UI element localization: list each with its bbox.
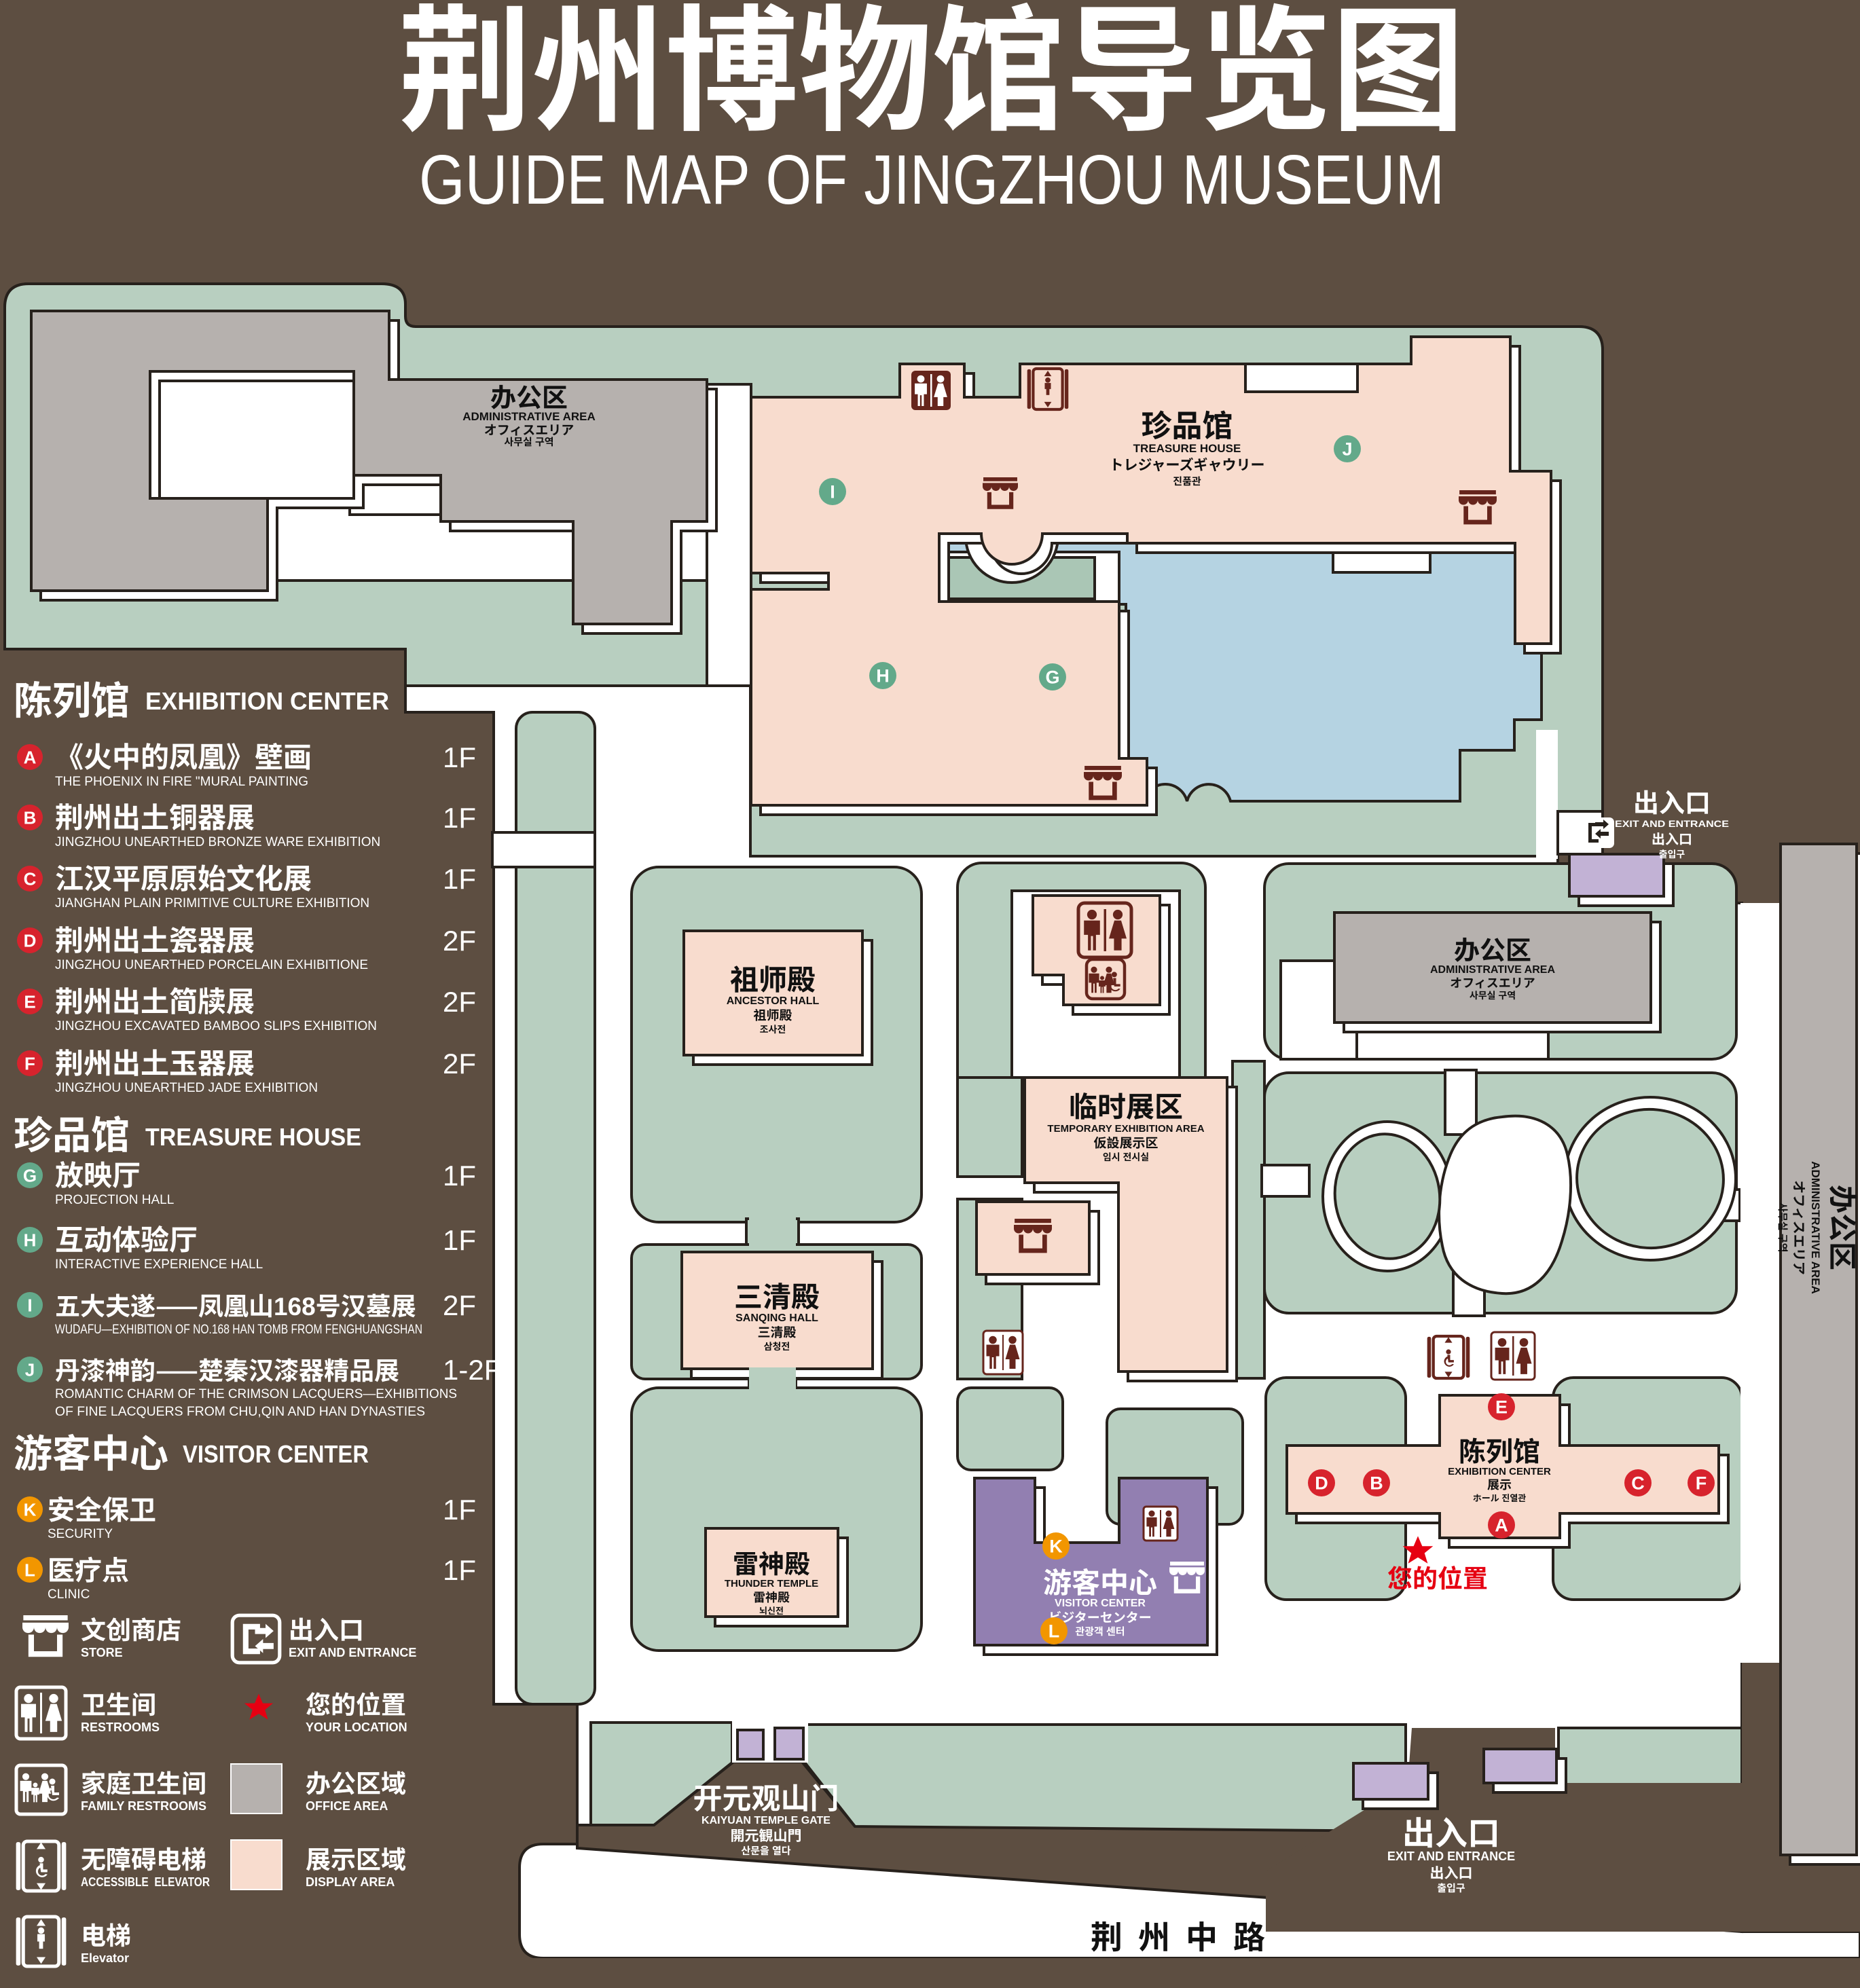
svg-text:ADMINISTRATIVE AREA: ADMINISTRATIVE AREA	[1809, 1161, 1822, 1294]
svg-text:OF FINE LACQUERS FROM CHU,QIN: OF FINE LACQUERS FROM CHU,QIN AND HAN DY…	[55, 1405, 425, 1419]
svg-text:您的位置: 您的位置	[1387, 1558, 1488, 1595]
svg-text:L: L	[24, 1560, 35, 1580]
svg-text:珍品馆: 珍品馆	[1141, 401, 1233, 445]
svg-text:游客中心: 游客中心	[14, 1423, 168, 1479]
svg-text:사무실 구역: 사무실 구역	[504, 435, 553, 449]
svg-text:1F: 1F	[443, 1554, 476, 1586]
svg-text:荆州出土玉器展: 荆州出土玉器展	[55, 1041, 255, 1082]
svg-text:1F: 1F	[443, 1160, 476, 1192]
svg-text:I: I	[27, 1295, 32, 1315]
svg-text:办公区: 办公区	[490, 377, 568, 414]
svg-text:H: H	[876, 666, 890, 686]
svg-text:出入口: 出入口	[289, 1610, 364, 1646]
svg-text:YOUR LOCATION: YOUR LOCATION	[306, 1720, 407, 1734]
svg-text:三清殿: 三清殿	[734, 1274, 820, 1316]
svg-text:H: H	[24, 1230, 37, 1250]
svg-text:EXIT AND ENTRANCE: EXIT AND ENTRANCE	[289, 1646, 416, 1659]
svg-text:출입구: 출입구	[1659, 847, 1685, 861]
svg-text:荆州出土简牍展: 荆州出土简牍展	[55, 979, 255, 1020]
svg-text:1F: 1F	[443, 1494, 476, 1526]
svg-text:ROMANTIC CHARM OF THE CRIMSON: ROMANTIC CHARM OF THE CRIMSON LACQUERS—E…	[55, 1387, 457, 1401]
svg-text:1-2F: 1-2F	[443, 1354, 501, 1386]
svg-text:출입구: 출입구	[1437, 1881, 1465, 1895]
svg-text:仮設展示区: 仮設展示区	[1093, 1133, 1158, 1152]
svg-text:JINGZHOU UNEARTHED BRONZE WARE: JINGZHOU UNEARTHED BRONZE WARE EXHIBITIO…	[55, 835, 380, 849]
svg-text:办公区: 办公区	[1823, 1185, 1860, 1270]
svg-text:家庭卫生间: 家庭卫生间	[81, 1763, 206, 1800]
svg-text:G: G	[23, 1165, 37, 1185]
svg-text:INTERACTIVE EXPERIENCE HALL: INTERACTIVE EXPERIENCE HALL	[55, 1257, 263, 1272]
svg-text:WUDAFU—EXHIBITION OF NO.168 HA: WUDAFU—EXHIBITION OF NO.168 HAN TOMB FRO…	[55, 1323, 422, 1337]
svg-text:F: F	[1696, 1473, 1707, 1494]
svg-text:JIANGHAN PLAIN PRIMITIVE CULTU: JIANGHAN PLAIN PRIMITIVE CULTURE EXHIBIT…	[55, 896, 369, 910]
svg-text:荆州出土铜器展: 荆州出土铜器展	[55, 795, 255, 836]
svg-text:CLINIC: CLINIC	[48, 1587, 90, 1602]
svg-text:陈列馆: 陈列馆	[1459, 1430, 1540, 1469]
svg-text:D: D	[24, 930, 37, 951]
svg-text:2F: 2F	[443, 925, 476, 957]
svg-text:江汉平原原始文化展: 江汉平原原始文化展	[55, 856, 312, 898]
svg-text:トレジャーズギャウリー: トレジャーズギャウリー	[1110, 454, 1265, 475]
svg-text:EXHIBITION CENTER: EXHIBITION CENTER	[145, 687, 389, 715]
svg-text:사무실 구역: 사무실 구역	[1470, 989, 1516, 1002]
svg-text:开元观山门: 开元观山门	[693, 1775, 839, 1818]
svg-text:開元観山門: 開元観山門	[731, 1825, 802, 1845]
svg-text:您的位置: 您的位置	[306, 1685, 406, 1721]
svg-text:DISPLAY AREA: DISPLAY AREA	[306, 1875, 395, 1889]
svg-text:A: A	[1495, 1515, 1508, 1536]
svg-text:조사전: 조사전	[760, 1023, 786, 1036]
svg-text:삼청전: 삼청전	[764, 1340, 790, 1353]
svg-text:K: K	[1049, 1536, 1063, 1557]
svg-text:ホール 진열관: ホール 진열관	[1473, 1491, 1527, 1504]
svg-text:2F: 2F	[443, 1289, 476, 1321]
svg-text:EXIT AND ENTRANCE: EXIT AND ENTRANCE	[1615, 818, 1729, 829]
svg-text:J: J	[1342, 439, 1352, 460]
svg-text:산문을 열다: 산문을 열다	[741, 1843, 790, 1858]
svg-text:1F: 1F	[443, 863, 476, 895]
svg-text:GUIDE MAP OF JINGZHOU MUSEUM: GUIDE MAP OF JINGZHOU MUSEUM	[419, 141, 1444, 219]
svg-text:放映厅: 放映厅	[55, 1153, 141, 1194]
svg-text:出入口: 出入口	[1430, 1862, 1473, 1883]
svg-text:OFFICE AREA: OFFICE AREA	[306, 1799, 388, 1813]
svg-text:사무실 구역: 사무실 구역	[1776, 1202, 1790, 1252]
svg-text:관광객 센터: 관광객 센터	[1075, 1624, 1125, 1638]
svg-text:C: C	[1631, 1473, 1645, 1494]
svg-text:电梯: 电梯	[81, 1915, 131, 1952]
svg-text:Elevator: Elevator	[81, 1951, 129, 1965]
svg-text:出入口: 出入口	[1652, 828, 1692, 848]
svg-text:荆州博物馆导览图: 荆州博物馆导览图	[399, 0, 1465, 158]
svg-text:1F: 1F	[443, 802, 476, 834]
svg-text:出入口: 出入口	[1402, 1807, 1500, 1854]
svg-text:2F: 2F	[443, 1048, 476, 1080]
svg-text:B: B	[1370, 1473, 1383, 1494]
svg-text:F: F	[24, 1053, 35, 1073]
svg-text:1F: 1F	[443, 741, 476, 773]
svg-text:珍品馆: 珍品馆	[14, 1105, 130, 1160]
svg-text:D: D	[1315, 1473, 1328, 1494]
svg-text:五大夫遂——凤凰山168号汉墓展: 五大夫遂——凤凰山168号汉墓展	[55, 1286, 416, 1323]
svg-text:临时展区: 临时展区	[1069, 1084, 1183, 1126]
svg-text:祖师殿: 祖师殿	[730, 957, 816, 999]
svg-text:2F: 2F	[443, 986, 476, 1018]
svg-text:オフィスエリア: オフィスエリア	[1790, 1180, 1810, 1275]
svg-text:医疗点: 医疗点	[48, 1549, 129, 1588]
svg-text:安全保卫: 安全保卫	[48, 1488, 156, 1528]
svg-text:陈列馆: 陈列馆	[14, 670, 130, 726]
svg-text:1F: 1F	[443, 1224, 476, 1256]
svg-text:无障碍电梯: 无障碍电梯	[81, 1839, 206, 1876]
svg-text:卫生间: 卫生间	[81, 1685, 156, 1721]
svg-text:J: J	[25, 1359, 35, 1380]
svg-text:PROJECTION HALL: PROJECTION HALL	[55, 1193, 174, 1207]
svg-text:祖师殿: 祖师殿	[753, 1006, 792, 1024]
svg-text:办公区域: 办公区域	[306, 1763, 406, 1800]
svg-text:E: E	[1495, 1397, 1508, 1418]
svg-text:G: G	[1045, 667, 1059, 688]
svg-text:VISITOR CENTER: VISITOR CENTER	[183, 1440, 369, 1468]
svg-text:JINGZHOU EXCAVATED BAMBOO SLIP: JINGZHOU EXCAVATED BAMBOO SLIPS EXHIBITI…	[55, 1019, 377, 1033]
svg-text:TREASURE HOUSE: TREASURE HOUSE	[1133, 442, 1241, 455]
svg-text:游客中心: 游客中心	[1043, 1560, 1157, 1602]
svg-text:진품관: 진품관	[1173, 474, 1201, 488]
svg-text:C: C	[24, 868, 37, 889]
svg-text:荆州出土瓷器展: 荆州出土瓷器展	[55, 918, 255, 959]
svg-text:JINGZHOU UNEARTHED PORCELAIN E: JINGZHOU UNEARTHED PORCELAIN EXHIBITIONE	[55, 958, 368, 972]
svg-text:E: E	[24, 991, 35, 1012]
svg-text:B: B	[24, 807, 37, 828]
svg-text:JINGZHOU UNEARTHED JADE EXHIBI: JINGZHOU UNEARTHED JADE EXHIBITION	[55, 1081, 318, 1095]
svg-text:I: I	[830, 482, 835, 502]
svg-text:展示区域: 展示区域	[306, 1839, 406, 1876]
svg-text:ACCESSIBLE ELEVATOR: ACCESSIBLE ELEVATOR	[81, 1875, 210, 1889]
svg-text:文创商店: 文创商店	[81, 1610, 181, 1646]
svg-text:A: A	[24, 747, 37, 767]
svg-text:荆州中路: 荆州中路	[1091, 1911, 1281, 1958]
svg-text:雷神殿: 雷神殿	[733, 1543, 810, 1581]
svg-text:THE PHOENIX IN FIRE "MURAL PAI: THE PHOENIX IN FIRE "MURAL PAINTING	[55, 775, 308, 789]
svg-text:L: L	[1048, 1621, 1060, 1642]
svg-text:《火中的凤凰》壁画: 《火中的凤凰》壁画	[55, 735, 312, 776]
svg-text:STORE: STORE	[81, 1646, 123, 1659]
svg-text:FAMILY RESTROOMS: FAMILY RESTROOMS	[81, 1799, 206, 1813]
svg-text:三清殿: 三清殿	[757, 1323, 796, 1341]
svg-text:EXIT AND ENTRANCE: EXIT AND ENTRANCE	[1387, 1849, 1515, 1863]
svg-text:办公区: 办公区	[1454, 929, 1531, 967]
svg-text:出入口: 出入口	[1633, 782, 1711, 820]
svg-text:RESTROOMS: RESTROOMS	[81, 1720, 160, 1734]
svg-text:TREASURE HOUSE: TREASURE HOUSE	[145, 1123, 361, 1151]
svg-text:임시 전시실: 임시 전시실	[1103, 1150, 1149, 1164]
svg-text:SECURITY: SECURITY	[48, 1527, 113, 1541]
svg-text:互动体验厅: 互动体验厅	[55, 1217, 198, 1259]
svg-text:K: K	[24, 1499, 37, 1520]
svg-text:丹漆神韵——楚秦汉漆器精品展: 丹漆神韵——楚秦汉漆器精品展	[55, 1350, 399, 1387]
svg-text:뇌신전: 뇌신전	[759, 1604, 784, 1617]
